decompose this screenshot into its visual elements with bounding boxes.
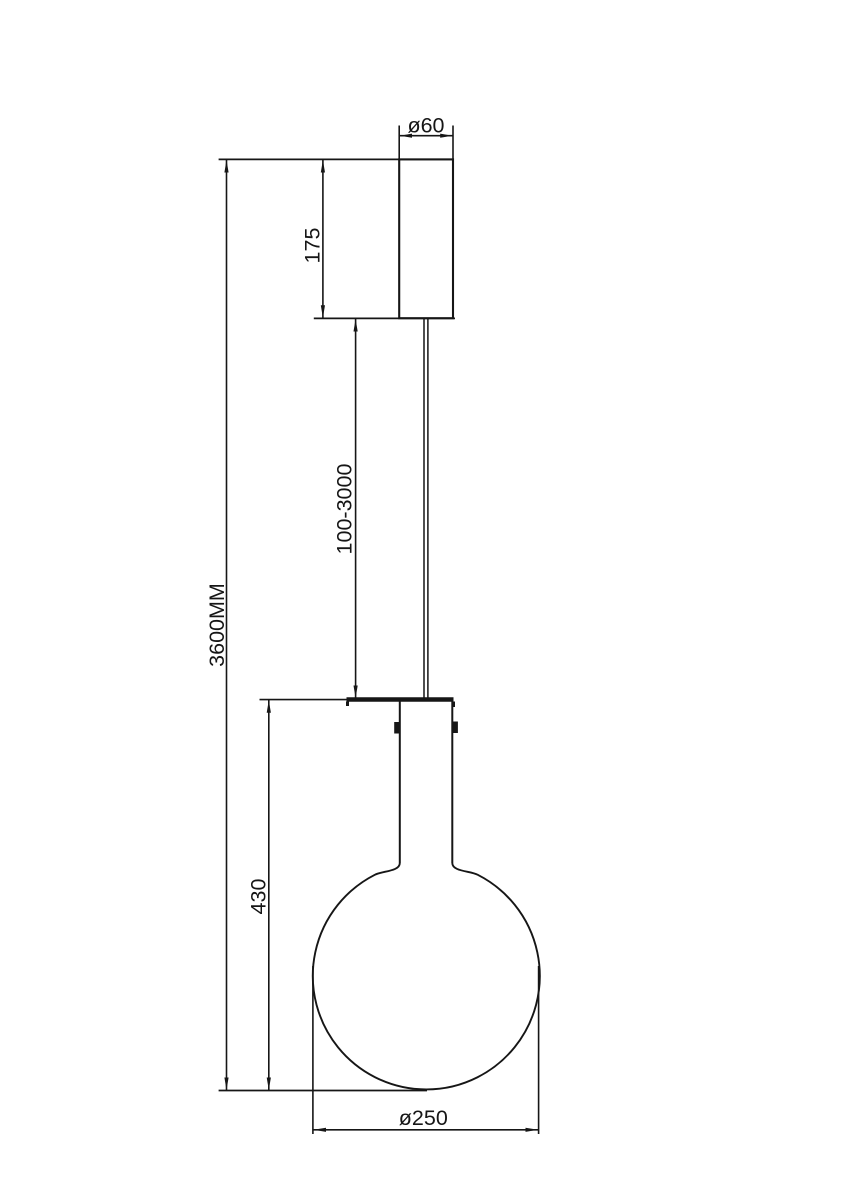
svg-text:3600MM: 3600MM [205,583,229,667]
svg-text:ø250: ø250 [399,1106,448,1130]
svg-text:100-3000: 100-3000 [333,464,357,555]
svg-text:ø60: ø60 [407,114,444,138]
svg-text:430: 430 [247,879,271,915]
svg-text:175: 175 [301,228,325,264]
